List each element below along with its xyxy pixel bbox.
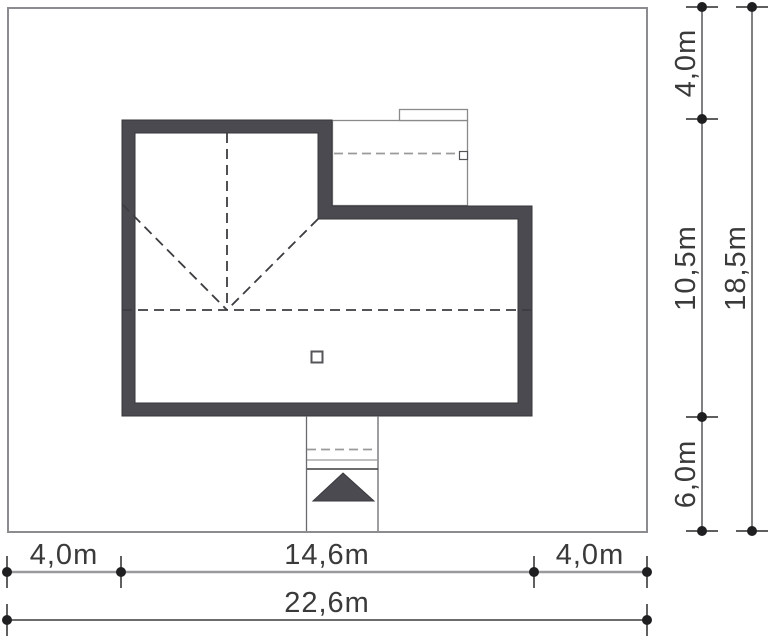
plot-boundary: [8, 8, 647, 532]
dim-label-bottom-middle: 14,6m: [284, 539, 370, 571]
right-dimension-total: 18,5m: [720, 2, 768, 536]
bottom-dimension-segments: 4,0m 14,6m 4,0m: [2, 539, 652, 588]
garage-roof-rect: [333, 121, 468, 206]
dim-label-right-bottom: 6,0m: [670, 440, 702, 508]
garage-dormer-rect: [400, 110, 468, 121]
bottom-dimension-total: 22,6m: [2, 587, 652, 636]
dim-label-right-middle: 10,5m: [670, 225, 702, 311]
dim-label-bottom-right: 4,0m: [556, 539, 624, 571]
site-plan-drawing: 4,0m 14,6m 4,0m 22,6m 4,0m: [0, 0, 770, 640]
dim-label-right-total: 18,5m: [720, 225, 752, 311]
garage-detail-square: [460, 152, 468, 160]
site-plan-canvas: 4,0m 14,6m 4,0m 22,6m 4,0m: [0, 0, 770, 640]
dim-label-bottom-total: 22,6m: [284, 587, 370, 619]
garage-outline: [333, 110, 468, 206]
dim-label-right-top: 4,0m: [670, 29, 702, 97]
dim-label-bottom-left: 4,0m: [30, 539, 98, 571]
chimney: [312, 352, 323, 363]
right-dimension-segments: 4,0m 10,5m 6,0m: [670, 2, 718, 536]
